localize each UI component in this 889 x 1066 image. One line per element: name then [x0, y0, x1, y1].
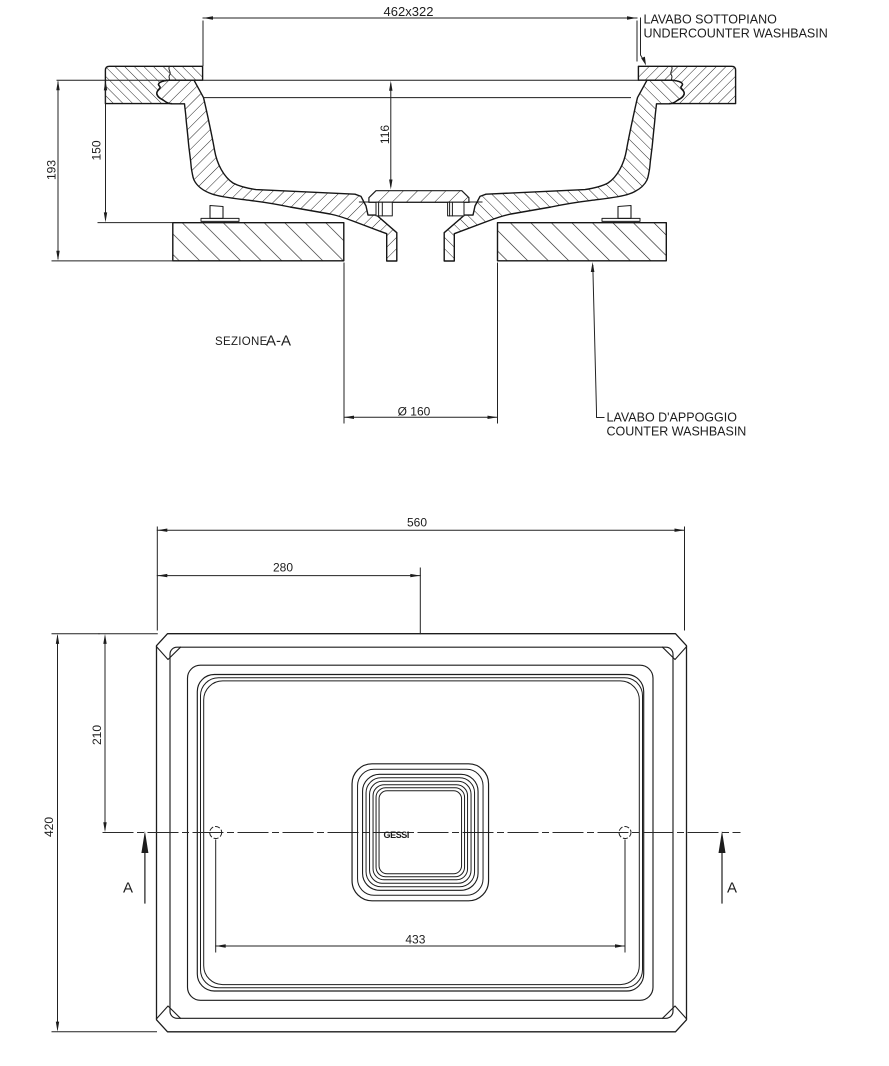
svg-text:GESSI: GESSI [384, 830, 410, 840]
svg-text:420: 420 [42, 817, 56, 837]
svg-text:280: 280 [273, 561, 293, 575]
svg-text:SEZIONE: SEZIONE [215, 336, 268, 348]
svg-text:COUNTER WASHBASIN: COUNTER WASHBASIN [607, 425, 747, 439]
svg-text:462x322: 462x322 [384, 4, 434, 19]
svg-text:Ø 160: Ø 160 [398, 404, 431, 418]
svg-text:116: 116 [378, 125, 392, 144]
svg-text:A: A [123, 880, 133, 897]
svg-text:210: 210 [90, 725, 104, 745]
svg-text:LAVABO D'APPOGGIO: LAVABO D'APPOGGIO [607, 411, 738, 425]
svg-text:A-A: A-A [266, 333, 291, 350]
svg-text:433: 433 [405, 932, 425, 946]
svg-text:LAVABO SOTTOPIANO: LAVABO SOTTOPIANO [644, 13, 778, 27]
svg-text:150: 150 [90, 140, 104, 160]
svg-text:560: 560 [407, 516, 427, 530]
svg-text:UNDERCOUNTER WASHBASIN: UNDERCOUNTER WASHBASIN [644, 27, 828, 41]
svg-text:A: A [727, 880, 737, 897]
svg-text:193: 193 [45, 160, 59, 180]
